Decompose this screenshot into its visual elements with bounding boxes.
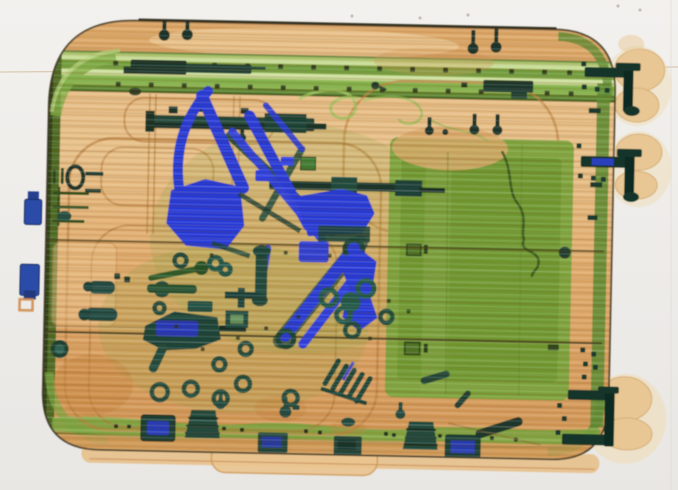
wheel-screws [591, 176, 596, 181]
film-speck [639, 9, 642, 12]
wheel-screws [595, 87, 600, 92]
wheel-pin-cap [617, 149, 642, 158]
wheel-screws [562, 416, 567, 421]
wheel-pin-cap [598, 386, 619, 393]
wheel-lobe [615, 88, 660, 123]
wheel-screws [580, 347, 585, 352]
wheel-screws [583, 361, 588, 366]
edge-tick [587, 215, 597, 220]
wheel-screws [582, 374, 587, 379]
wheel-pin-cap [616, 63, 641, 72]
suitcase-contents-layer [37, 13, 619, 463]
scanline-overlay [40, 16, 619, 464]
wheel-screws [557, 403, 562, 408]
film-speck [617, 5, 620, 8]
wheel-screws [581, 61, 586, 66]
wheel-screws [576, 143, 581, 148]
wheel-pin [624, 152, 635, 195]
wheel-screws [578, 173, 583, 178]
wheel-axle-bar [562, 434, 610, 446]
film-speck [467, 14, 470, 17]
xray-scan-image [0, 0, 678, 490]
wheel-screws [582, 84, 587, 89]
edge-tick [589, 108, 601, 113]
wheel-pin [604, 388, 615, 446]
film-speck [351, 15, 354, 18]
side-handle-upper [24, 199, 42, 224]
wheel-screws [601, 177, 606, 182]
film-speck [419, 17, 422, 20]
edge-tick [590, 182, 602, 187]
wheel-screws [605, 88, 610, 93]
wheel-screws [591, 352, 596, 357]
suitcase-group [16, 13, 674, 482]
wheel-axle-glint [592, 158, 614, 165]
wheel-screws [555, 430, 560, 435]
xray-viewport [0, 0, 678, 490]
wheel-pin [623, 65, 634, 112]
wheel-screws [593, 365, 598, 370]
